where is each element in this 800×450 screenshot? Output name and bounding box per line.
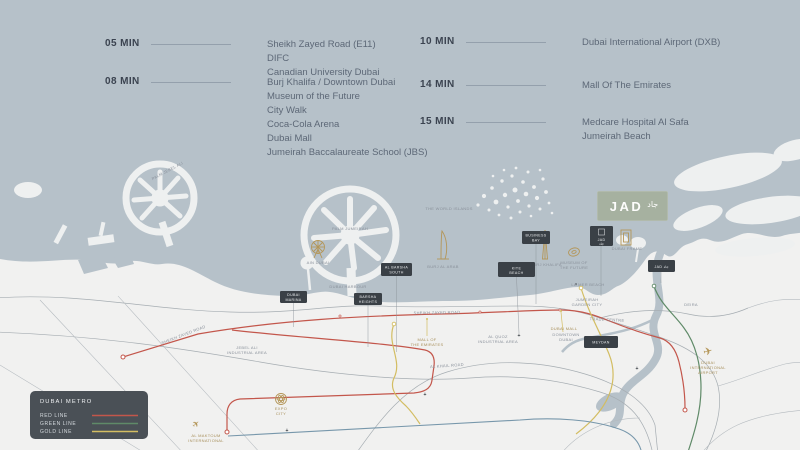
destination-list: Sheikh Zayed Road (E11) DIFC Canadian Un… bbox=[267, 38, 379, 80]
location-map-page: ✈ ✈ PALM JEBEL ALI PALM JUMEIRAH THE WOR… bbox=[0, 0, 800, 450]
svg-text:+: + bbox=[518, 333, 521, 339]
label-burj-al-arab: BURJ AL ARAB bbox=[427, 264, 458, 269]
callout-jad-badge: JAD جاد bbox=[648, 260, 675, 272]
label-sheikh-zayed-road-coast: SHEIKH ZAYED ROAD bbox=[414, 310, 461, 316]
destination: Medcare Hospital Al Safa bbox=[582, 116, 689, 130]
jad-logo-text: JAD bbox=[610, 199, 644, 214]
destination: Jumeirah Beach bbox=[582, 130, 689, 144]
travel-time: 14 MIN bbox=[420, 79, 466, 90]
destination-list: Mall Of The Emirates bbox=[582, 79, 671, 93]
label-mall-of-emirates-2: THE EMIRATES bbox=[411, 342, 444, 347]
callout-jad-site-marker: JAD جاد bbox=[590, 226, 613, 246]
label-deira: DEIRA bbox=[684, 302, 698, 307]
metro-legend: DUBAI METRO RED LINE GREEN LINE GOLD LIN… bbox=[30, 391, 148, 439]
destination: City Walk bbox=[267, 104, 428, 118]
svg-text:+: + bbox=[636, 366, 639, 372]
svg-text:+: + bbox=[286, 428, 289, 434]
label-expo-city-2: CITY bbox=[276, 411, 286, 416]
label-al-quoz-2: INDUSTRIAL AREA bbox=[478, 339, 518, 344]
destination: DIFC bbox=[267, 52, 379, 66]
travel-row-08min: 08 MIN Burj Khalifa / Downtown Dubai Mus… bbox=[105, 76, 428, 160]
label-downtown-2: DUBAI bbox=[559, 337, 573, 342]
label-al-maktoum-2: INTERNATIONAL bbox=[188, 438, 224, 443]
label-dubai-harbour: DUBAI HARBOUR bbox=[329, 284, 366, 289]
travel-time: 08 MIN bbox=[105, 76, 151, 87]
label-jebel-ali-industrial-2: INDUSTRIAL AREA bbox=[227, 350, 267, 355]
destination: Museum of the Future bbox=[267, 90, 428, 104]
callout-kite-beach: KITE BEACH bbox=[498, 262, 535, 277]
svg-text:DUBAI: DUBAI bbox=[287, 293, 300, 297]
divider-line bbox=[466, 42, 546, 43]
destination: Sheikh Zayed Road (E11) bbox=[267, 38, 379, 52]
destination: Mall Of The Emirates bbox=[582, 79, 671, 93]
destination-list: Medcare Hospital Al Safa Jumeirah Beach bbox=[582, 116, 689, 144]
svg-text:MEYDAN: MEYDAN bbox=[592, 341, 610, 345]
destination-list: Dubai International Airport (DXB) bbox=[582, 36, 720, 50]
legend-green-line-label: GREEN LINE bbox=[40, 421, 76, 427]
svg-text:+: + bbox=[424, 392, 427, 398]
label-jumeirah-garden-city-2: GARDEN CITY bbox=[572, 302, 603, 307]
travel-row-05min: 05 MIN Sheikh Zayed Road (E11) DIFC Cana… bbox=[105, 38, 379, 80]
label-dubai-frame: DUBAI FRAME bbox=[612, 246, 643, 251]
label-palm-jumeirah: PALM JUMEIRAH bbox=[332, 226, 368, 231]
divider-line bbox=[151, 44, 231, 45]
jad-logo-arabic-mark: جاد bbox=[647, 200, 658, 209]
svg-text:BAY: BAY bbox=[532, 238, 540, 242]
svg-text:BUSINESS: BUSINESS bbox=[526, 234, 547, 238]
svg-text:AL BARSHA: AL BARSHA bbox=[385, 266, 408, 270]
destination-list: Burj Khalifa / Downtown Dubai Museum of … bbox=[267, 76, 428, 160]
legend-title: DUBAI METRO bbox=[40, 399, 92, 405]
svg-text:جاد: جاد bbox=[599, 242, 604, 246]
divider-line bbox=[466, 85, 546, 86]
destination: Jumeirah Baccalaureate School (JBS) bbox=[267, 146, 428, 160]
destination: Dubai Mall bbox=[267, 132, 428, 146]
divider-line bbox=[151, 82, 231, 83]
destination: Dubai International Airport (DXB) bbox=[582, 36, 720, 50]
svg-text:BARSHA: BARSHA bbox=[360, 295, 377, 299]
divider-line bbox=[466, 122, 546, 123]
destination: Coca-Cola Arena bbox=[267, 118, 428, 132]
label-dubai-mall: DUBAI MALL bbox=[551, 326, 578, 331]
label-dxb-3: AIRPORT bbox=[698, 370, 718, 375]
svg-text:BEACH: BEACH bbox=[509, 271, 523, 275]
callout-dubai-marina: DUBAI MARINA bbox=[280, 291, 307, 303]
travel-row-15min: 15 MIN Medcare Hospital Al Safa Jumeirah… bbox=[420, 116, 689, 144]
callout-business-bay: BUSINESS BAY bbox=[522, 231, 550, 244]
legend-gold-line-label: GOLD LINE bbox=[40, 429, 72, 435]
label-world-islands: THE WORLD ISLANDS bbox=[425, 206, 472, 211]
travel-time: 15 MIN bbox=[420, 116, 466, 127]
label-ain-dubai: AIN DUBAI bbox=[307, 260, 330, 265]
svg-text:HEIGHTS: HEIGHTS bbox=[359, 300, 378, 304]
svg-text:MARINA: MARINA bbox=[285, 298, 301, 302]
travel-row-10min: 10 MIN Dubai International Airport (DXB) bbox=[420, 36, 720, 50]
travel-time: 05 MIN bbox=[105, 38, 151, 49]
label-la-mer-beach: LA MER BEACH bbox=[571, 282, 604, 287]
callout-al-barsha-south: AL BARSHA SOUTH bbox=[381, 263, 412, 276]
jad-logo: JAD جاد bbox=[597, 191, 668, 221]
destination: Burj Khalifa / Downtown Dubai bbox=[267, 76, 428, 90]
callout-barsha-heights: BARSHA HEIGHTS bbox=[354, 293, 382, 305]
svg-text:JAD جاد: JAD جاد bbox=[654, 265, 668, 269]
svg-text:SOUTH: SOUTH bbox=[389, 270, 403, 274]
travel-time: 10 MIN bbox=[420, 36, 466, 47]
label-museum-of-future-2: THE FUTURE bbox=[560, 265, 588, 270]
svg-text:KITE: KITE bbox=[512, 267, 522, 271]
callout-meydan: MEYDAN bbox=[584, 336, 618, 348]
legend-red-line-label: RED LINE bbox=[40, 413, 68, 419]
travel-row-14min: 14 MIN Mall Of The Emirates bbox=[420, 79, 671, 93]
